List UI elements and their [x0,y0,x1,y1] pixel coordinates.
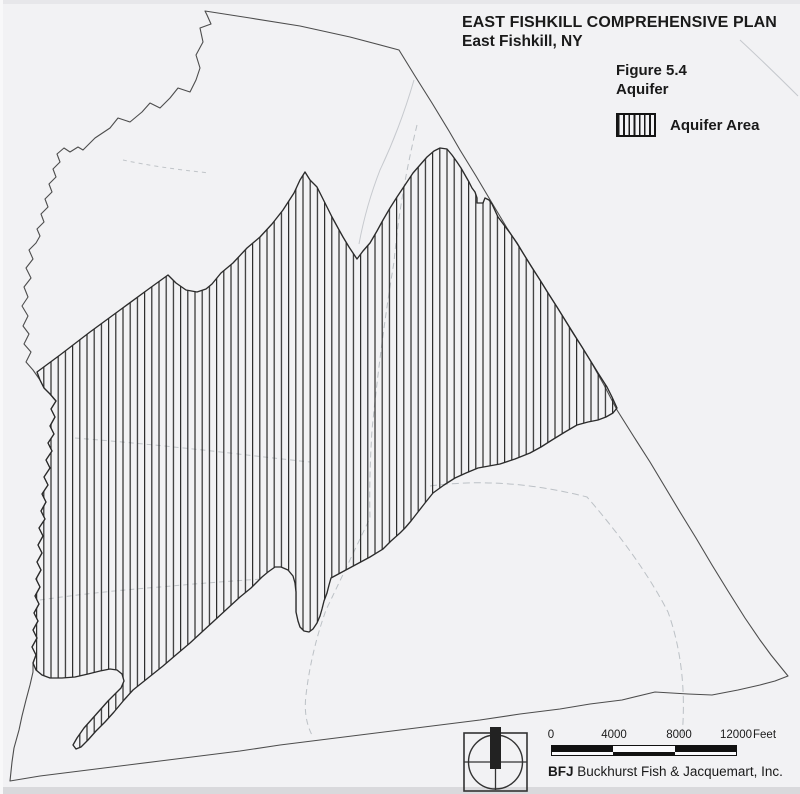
scale-bar [551,745,737,756]
plan-location: East Fishkill, NY [462,32,777,51]
figure-block: Figure 5.4 Aquifer [616,61,687,99]
scale-tick-4000: 4000 [601,729,627,741]
scale-bar-labels: 0 4000 8000 12000 Feet [0,729,800,743]
attribution: BFJ Buckhurst Fish & Jacquemart, Inc. [548,764,783,779]
scan-edge-top [0,0,800,4]
figure-label: Figure 5.4 [616,61,687,80]
firm-name: Buckhurst Fish & Jacquemart, Inc. [577,764,783,779]
scale-bar-bottom-row [552,752,736,755]
scan-edge-left [0,0,3,794]
scale-unit-label: Feet [753,729,776,741]
legend: Aquifer Area [616,113,759,137]
pencil-line [123,160,210,173]
scale-seg [552,752,613,755]
scale-tick-12000: 12000 [720,729,752,741]
plan-title: EAST FISHKILL COMPREHENSIVE PLAN [462,13,777,32]
scale-seg [613,752,674,755]
scale-tick-8000: 8000 [666,729,692,741]
aquifer-area [32,148,617,749]
scan-edge-bottom [0,787,800,794]
scale-tick-0: 0 [548,729,554,741]
figure-title: Aquifer [616,80,687,99]
legend-item-label: Aquifer Area [670,117,759,134]
pencil-line [430,483,683,737]
title-block: EAST FISHKILL COMPREHENSIVE PLAN East Fi… [462,13,777,51]
firm-abbreviation: BFJ [548,764,574,779]
scanned-map-page: EAST FISHKILL COMPREHENSIVE PLAN East Fi… [0,0,800,794]
aquifer-hatch-swatch [616,113,656,137]
scale-seg [675,752,736,755]
